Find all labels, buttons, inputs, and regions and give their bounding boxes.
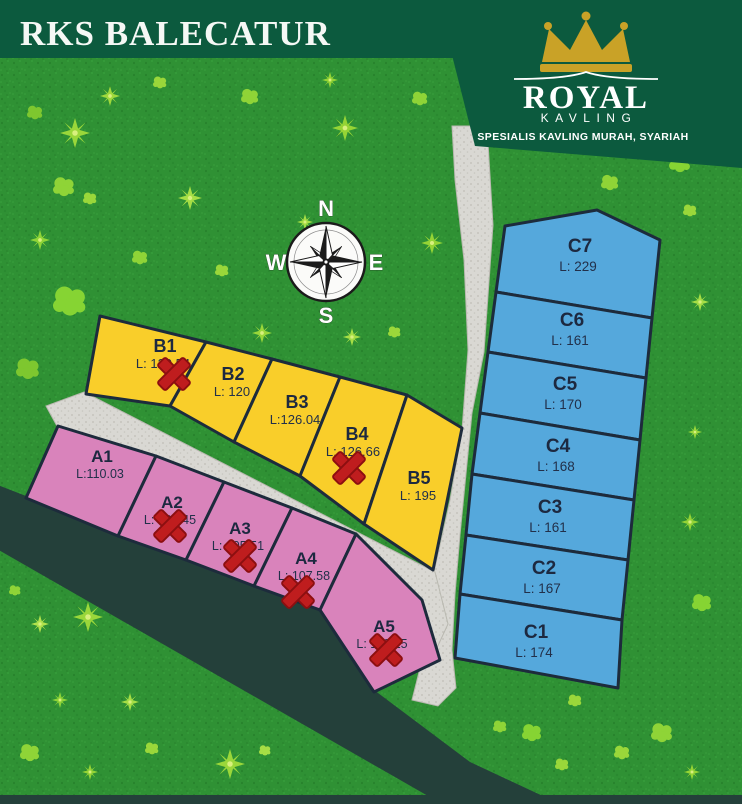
page-title: RKS BALECATUR <box>20 14 331 53</box>
plot-c4-area: L: 168 <box>537 459 575 474</box>
plot-a1-area: L:110.03 <box>76 467 124 481</box>
plot-c5-area: L: 170 <box>544 397 582 412</box>
plot-b5-area: L: 195 <box>400 488 436 503</box>
plot-c6-id: C6 <box>560 310 584 331</box>
plot-b3-area: L:126.04 <box>270 412 321 427</box>
plot-b3-id: B3 <box>285 392 308 412</box>
compass-label-west: W <box>266 250 287 275</box>
plot-c2-id: C2 <box>532 558 556 579</box>
plot-a3-id: A3 <box>229 519 251 538</box>
plot-c1-area: L: 174 <box>515 645 553 660</box>
compass-label-south: S <box>319 303 334 328</box>
plot-c3-area: L: 161 <box>529 520 567 535</box>
brand-logo: ROYAL KAVLING SPESIALIS KAVLING MURAH, S… <box>452 0 742 168</box>
plot-b2-id: B2 <box>221 364 244 384</box>
plot-b2-area: L: 120 <box>214 384 250 399</box>
plot-c5-id: C5 <box>553 374 578 395</box>
plot-a1-id: A1 <box>91 447 113 466</box>
bottom-road-strip <box>0 795 742 804</box>
compass-label-east: E <box>369 250 384 275</box>
plot-c7-area: L: 229 <box>559 259 597 274</box>
plot-c4-id: C4 <box>546 436 571 457</box>
plot-c7-id: C7 <box>568 236 592 257</box>
plot-c6-area: L: 161 <box>551 333 589 348</box>
plot-b5-id: B5 <box>407 468 430 488</box>
plot-b4-id: B4 <box>345 424 368 444</box>
plot-c3-id: C3 <box>538 497 562 518</box>
plot-c2-area: L: 167 <box>523 581 561 596</box>
compass-label-north: N <box>318 196 334 221</box>
brand-subname: KAVLING <box>541 111 638 125</box>
plot-b1-id: B1 <box>153 336 176 356</box>
plot-a4-id: A4 <box>295 549 317 568</box>
brand-tagline: SPESIALIS KAVLING MURAH, SYARIAH <box>477 131 688 143</box>
site-plan-poster: B1 L: 120.54 B2 L: 120 B3 L:126.04 B4 L:… <box>0 0 742 804</box>
plot-c1-id: C1 <box>524 622 549 643</box>
